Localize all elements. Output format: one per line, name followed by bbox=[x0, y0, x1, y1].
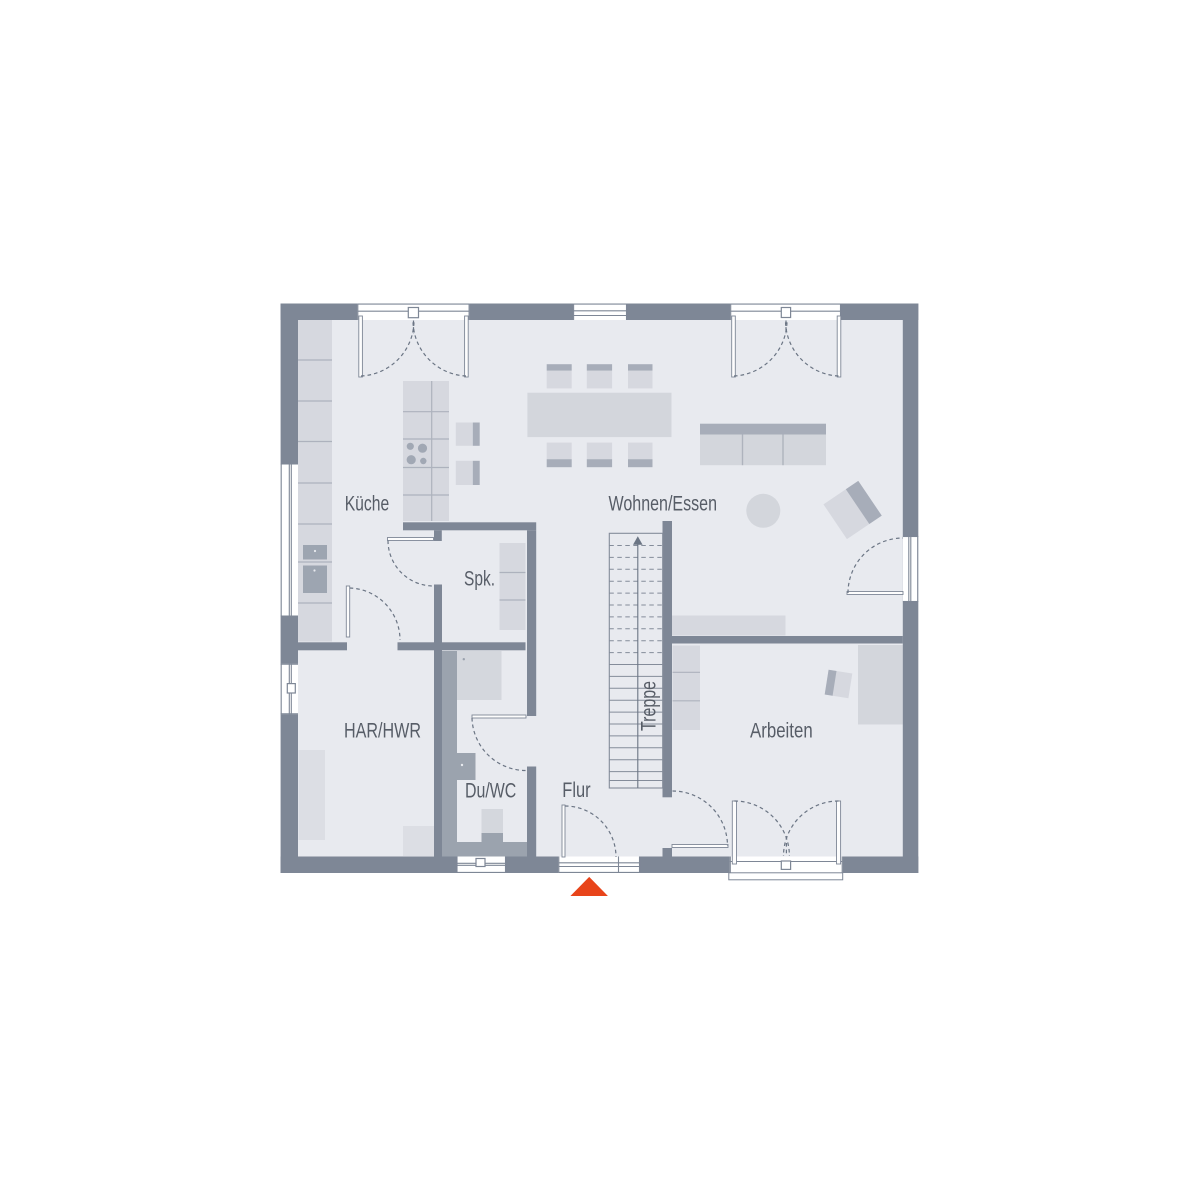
svg-text:Flur: Flur bbox=[562, 779, 590, 802]
svg-text:Küche: Küche bbox=[345, 493, 390, 516]
svg-text:Treppe: Treppe bbox=[638, 681, 661, 731]
svg-text:Arbeiten: Arbeiten bbox=[750, 719, 813, 742]
svg-text:HAR/HWR: HAR/HWR bbox=[344, 719, 421, 742]
svg-text:Spk.: Spk. bbox=[464, 567, 495, 590]
svg-text:Wohnen/Essen: Wohnen/Essen bbox=[609, 493, 718, 516]
svg-text:Du/WC: Du/WC bbox=[465, 780, 516, 803]
